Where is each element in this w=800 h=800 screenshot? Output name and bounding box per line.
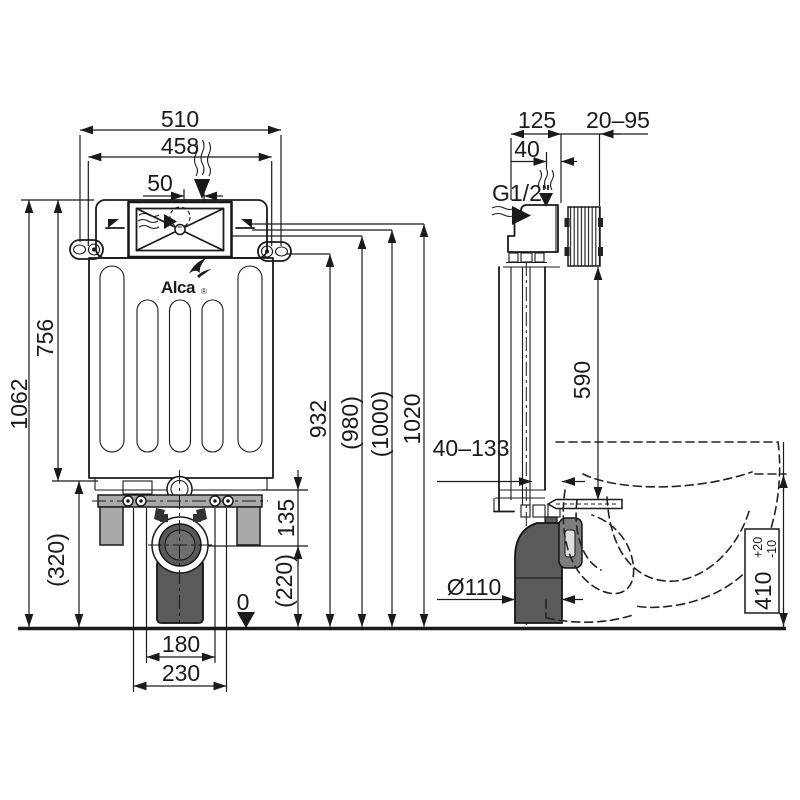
level-triangle-icon bbox=[237, 612, 255, 628]
dim-depth: 125 bbox=[518, 107, 556, 133]
dim-h932: 932 bbox=[305, 400, 331, 438]
dim-bowl-height-plus: +20 bbox=[751, 537, 765, 558]
front-view: Alca ® bbox=[70, 140, 291, 624]
water-wave-icon bbox=[138, 214, 159, 229]
dim-flush-pipe-length: 590 bbox=[569, 361, 595, 399]
dim-frame-width: 458 bbox=[161, 133, 199, 159]
mounting-lug-left bbox=[70, 240, 103, 259]
dim-flush-offset: 50 bbox=[147, 170, 173, 196]
support-foot-left bbox=[100, 507, 123, 545]
dim-base-height: (320) bbox=[43, 533, 69, 587]
base-detail-box bbox=[123, 481, 152, 494]
flange-bolt-left bbox=[160, 514, 168, 522]
dim-inlet-to-wall: 40 bbox=[514, 136, 540, 162]
dim-drain-axis-height: (220) bbox=[271, 554, 297, 608]
alca-logo: Alca ® bbox=[161, 258, 211, 297]
water-level-icon-right bbox=[236, 219, 254, 228]
dim-bowl-height: 410 bbox=[750, 572, 776, 610]
dim-overall-width: 510 bbox=[161, 106, 199, 132]
water-level-icon-left bbox=[106, 219, 124, 228]
dim-h1000: (1000) bbox=[367, 391, 393, 457]
dim-drain-diameter: Ø110 bbox=[447, 574, 502, 600]
bowl-fixing-plate bbox=[548, 500, 622, 509]
dimensions-side: 125 20–95 40 G1/2" 590 40–133 Ø110 410 +… bbox=[433, 107, 784, 627]
dim-wall-finish-range: 20–95 bbox=[586, 107, 650, 133]
dim-bowl-height-minus: -10 bbox=[765, 540, 779, 558]
technical-drawing-page: Alca ® bbox=[0, 0, 800, 800]
zero-level-marker: 0 bbox=[237, 589, 255, 628]
flange-bolt-right bbox=[193, 514, 201, 522]
dim-anchor-outer-spacing: 230 bbox=[162, 660, 200, 686]
cistern-clamps-side bbox=[503, 253, 560, 267]
frame-and-flush-pipe-side bbox=[494, 267, 560, 517]
inspection-opening bbox=[129, 202, 232, 257]
registered-mark: ® bbox=[201, 287, 207, 296]
dimensions-front: 0 510 458 50 1062 756 (320) 135 (220) 93… bbox=[6, 106, 425, 692]
side-view bbox=[492, 168, 786, 625]
bowl-height-dimension-box: 410 +20 -10 bbox=[745, 529, 779, 613]
wall-finish-block bbox=[565, 207, 604, 266]
dim-floor-level: 0 bbox=[237, 589, 250, 615]
cistern-installation-drawing: Alca ® bbox=[0, 0, 800, 800]
dim-tank-height: 756 bbox=[32, 319, 58, 357]
dim-h1020: 1020 bbox=[399, 393, 425, 444]
dim-h980: (980) bbox=[337, 396, 363, 450]
drain-elbow-side bbox=[515, 517, 582, 623]
dim-overall-height: 1062 bbox=[6, 378, 32, 429]
dim-valve-to-drain: 135 bbox=[273, 499, 299, 537]
water-inlet-arrow-side-left bbox=[492, 206, 531, 225]
dim-water-inlet-thread: G1/2" bbox=[492, 180, 550, 206]
brand-name: Alca bbox=[161, 278, 196, 297]
support-foot-right bbox=[237, 507, 260, 545]
dim-pipe-to-wall-range: 40–133 bbox=[433, 435, 510, 461]
dim-anchor-spacing: 180 bbox=[162, 631, 200, 657]
